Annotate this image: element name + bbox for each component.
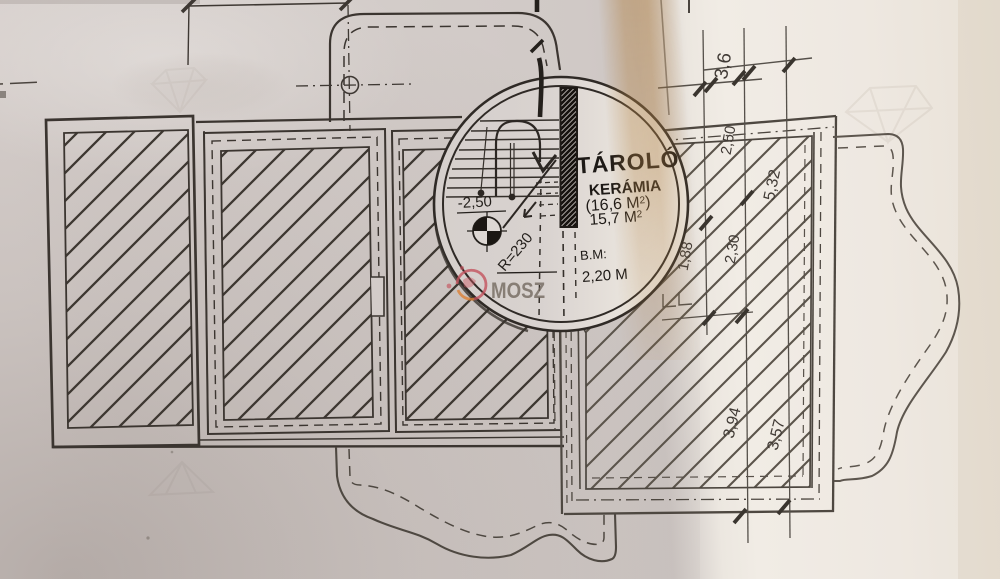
svg-text:-2,50: -2,50 (457, 193, 492, 212)
svg-text:MOSZ: MOSZ (491, 278, 545, 303)
svg-text:B.M:: B.M: (580, 246, 608, 263)
